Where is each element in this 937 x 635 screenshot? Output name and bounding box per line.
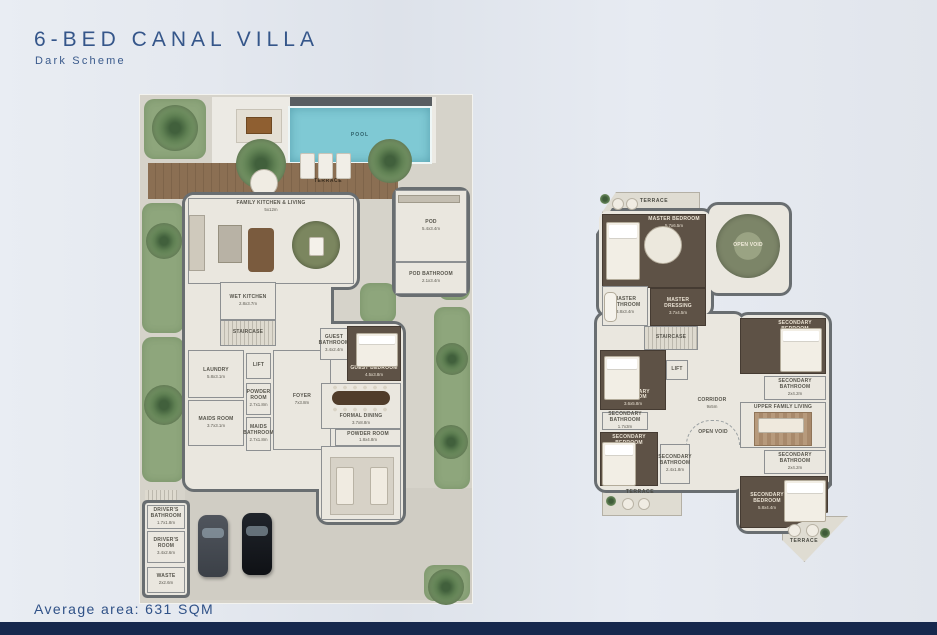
room-label: SECONDARY BATHROOM2.4x1.8m (658, 455, 691, 472)
room-label: DRIVER'S BATHROOM1.7x1.8m (150, 508, 182, 525)
kitchen-island (218, 225, 242, 263)
room-secondary-bathroom-4: SECONDARY BATHROOM2.4x1.8m (660, 444, 690, 484)
pool-lounger (318, 153, 333, 179)
terrace-label: TERRACE (634, 198, 674, 204)
room-label: POWDER ROOM2.7x1.8m (247, 390, 271, 407)
room-laundry: LAUNDRY5.8x3.1m (188, 350, 244, 398)
dining-chairs (332, 407, 390, 412)
bathtub (604, 292, 617, 322)
room-label: LIFT (671, 367, 682, 373)
terrace-label: TERRACE (786, 538, 822, 544)
bed (780, 328, 822, 372)
room-label: FOYER7x3.8m (293, 394, 311, 406)
master-bed (606, 222, 640, 280)
car-windshield (246, 526, 268, 536)
palm-tree (144, 385, 184, 425)
room-label: WET KITCHEN2.8x3.7m (230, 295, 267, 307)
room-secondary-bathroom-2: SECONDARY BATHROOM2x4.2m (764, 376, 826, 400)
room-pod-bathroom: POD BATHROOM2.1x3.4m (395, 262, 467, 294)
plant (820, 528, 830, 538)
pool-lounger (300, 153, 315, 179)
terrace-chair (806, 524, 819, 537)
palm-tree (152, 105, 198, 151)
pod-desk (398, 195, 460, 203)
pool-label: POOL (351, 132, 369, 138)
grass-patch (360, 283, 396, 323)
bed (784, 480, 826, 522)
page-title: 6-BED CANAL VILLA (34, 28, 319, 52)
room-label: WASTE2x2.6m (157, 574, 176, 586)
master-sitting-rug (644, 226, 682, 264)
bed (604, 356, 640, 400)
footer-bar (0, 622, 937, 635)
room-label: STAIRCASE (656, 335, 686, 341)
terrace-chair (638, 498, 650, 510)
upper-floor-plan: TERRACE MASTER BEDROOM5.7x6.5m OPEN VOID… (586, 186, 856, 571)
car (242, 513, 272, 575)
room-lift: LIFT (246, 353, 271, 379)
kitchen-counter (189, 215, 205, 271)
room-secondary-bathroom-1: SECONDARY BATHROOM1.7x3m (602, 412, 648, 430)
sofa (758, 418, 804, 433)
room-label: SECONDARY BATHROOM1.7x3m (605, 412, 645, 429)
pool-lounger (336, 153, 351, 179)
room-wet-kitchen: WET KITCHEN2.8x3.7m (220, 282, 276, 320)
family-dining-table (248, 228, 274, 272)
room-label: MAIDS ROOM3.7x3.1m (198, 417, 233, 429)
entry-mat (246, 117, 272, 134)
open-void-rug: OPEN VOID (716, 214, 780, 278)
room-label: SECONDARY BATHROOM2x4.2m (767, 453, 823, 470)
car-windshield (202, 528, 224, 538)
room-label: MASTER DRESSING3.7x4.5m (653, 298, 703, 315)
palm-tree (436, 343, 468, 375)
page: 6-BED CANAL VILLA Dark Scheme POOL TERRA… (0, 0, 937, 635)
sofa (336, 467, 354, 505)
room-powder-room-2: POWDER ROOM1.8x4.8m (335, 429, 401, 446)
sofa (370, 467, 388, 505)
room-label: OPEN VOID (698, 430, 728, 436)
ground-floor-plan: POOL TERRACE (140, 95, 472, 603)
room-drivers-room: DRIVER'S ROOM3.4x2.6m (147, 531, 185, 563)
palm-tree (146, 223, 182, 259)
guest-bed (356, 333, 398, 367)
formal-dining-table (332, 391, 390, 405)
terrace-chair (788, 524, 801, 537)
palm-tree (428, 569, 464, 605)
room-lift: LIFT (666, 360, 688, 380)
car (198, 515, 228, 577)
bed (602, 442, 636, 486)
room-guest-bathroom: GUEST BATHROOM3.4x2.4m (320, 328, 348, 360)
palm-tree (368, 139, 412, 183)
room-powder-room-1: POWDER ROOM2.7x1.8m (246, 383, 271, 415)
room-corridor: CORRIDOR9x5m (684, 320, 740, 488)
room-maids-room: MAIDS ROOM3.7x3.1m (188, 400, 244, 446)
room-label: FAMILY KITCHEN & LIVING5x12m (236, 201, 305, 213)
room-label: GUEST BEDROOM4.5x3.8m (350, 366, 397, 378)
room-drivers-bathroom: DRIVER'S BATHROOM1.7x1.8m (147, 505, 185, 529)
plant (606, 496, 616, 506)
terrace-chair (626, 198, 638, 210)
room-staircase: STAIRCASE (220, 320, 276, 346)
room-label: STAIRCASE (233, 330, 263, 337)
terrace-chair (612, 198, 624, 210)
room-label: SECONDARY BATHROOM2x4.2m (767, 379, 823, 396)
coffee-table (309, 237, 324, 256)
room-maids-bathroom: MAIDS BATHROOM2.7x1.8m (246, 417, 271, 451)
room-label: POD5.4x3.4m (422, 220, 440, 232)
room-label: OPEN VOID (733, 243, 763, 249)
grass-patch (434, 307, 470, 489)
room-label: GUEST BATHROOM3.4x2.4m (319, 335, 350, 352)
room-secondary-bathroom-3: SECONDARY BATHROOM2x4.2m (764, 450, 826, 474)
room-label: MAIDS BATHROOM2.7x1.8m (243, 425, 274, 442)
terrace-label: TERRACE (622, 489, 658, 495)
room-label: DRIVER'S ROOM3.4x2.6m (150, 538, 182, 555)
room-label: CORRIDOR9x5m (698, 398, 727, 410)
room-label: POD BATHROOM2.1x3.4m (409, 272, 453, 284)
average-area-text: Average area: 631 SQM (34, 601, 214, 617)
dining-chairs (332, 385, 390, 390)
room-waste: WASTE2x2.6m (147, 567, 185, 593)
palm-tree (434, 425, 468, 459)
room-label: LIFT (253, 363, 264, 370)
room-label: POWDER ROOM1.8x4.8m (347, 432, 389, 444)
room-label: FORMAL DINING3.7x8.8m (340, 414, 383, 426)
page-subtitle: Dark Scheme (35, 55, 126, 67)
room-label: LAUNDRY5.8x3.1m (203, 368, 229, 380)
terrace-chair (622, 498, 634, 510)
pool-edge-wall (290, 97, 432, 106)
plant (600, 194, 610, 204)
